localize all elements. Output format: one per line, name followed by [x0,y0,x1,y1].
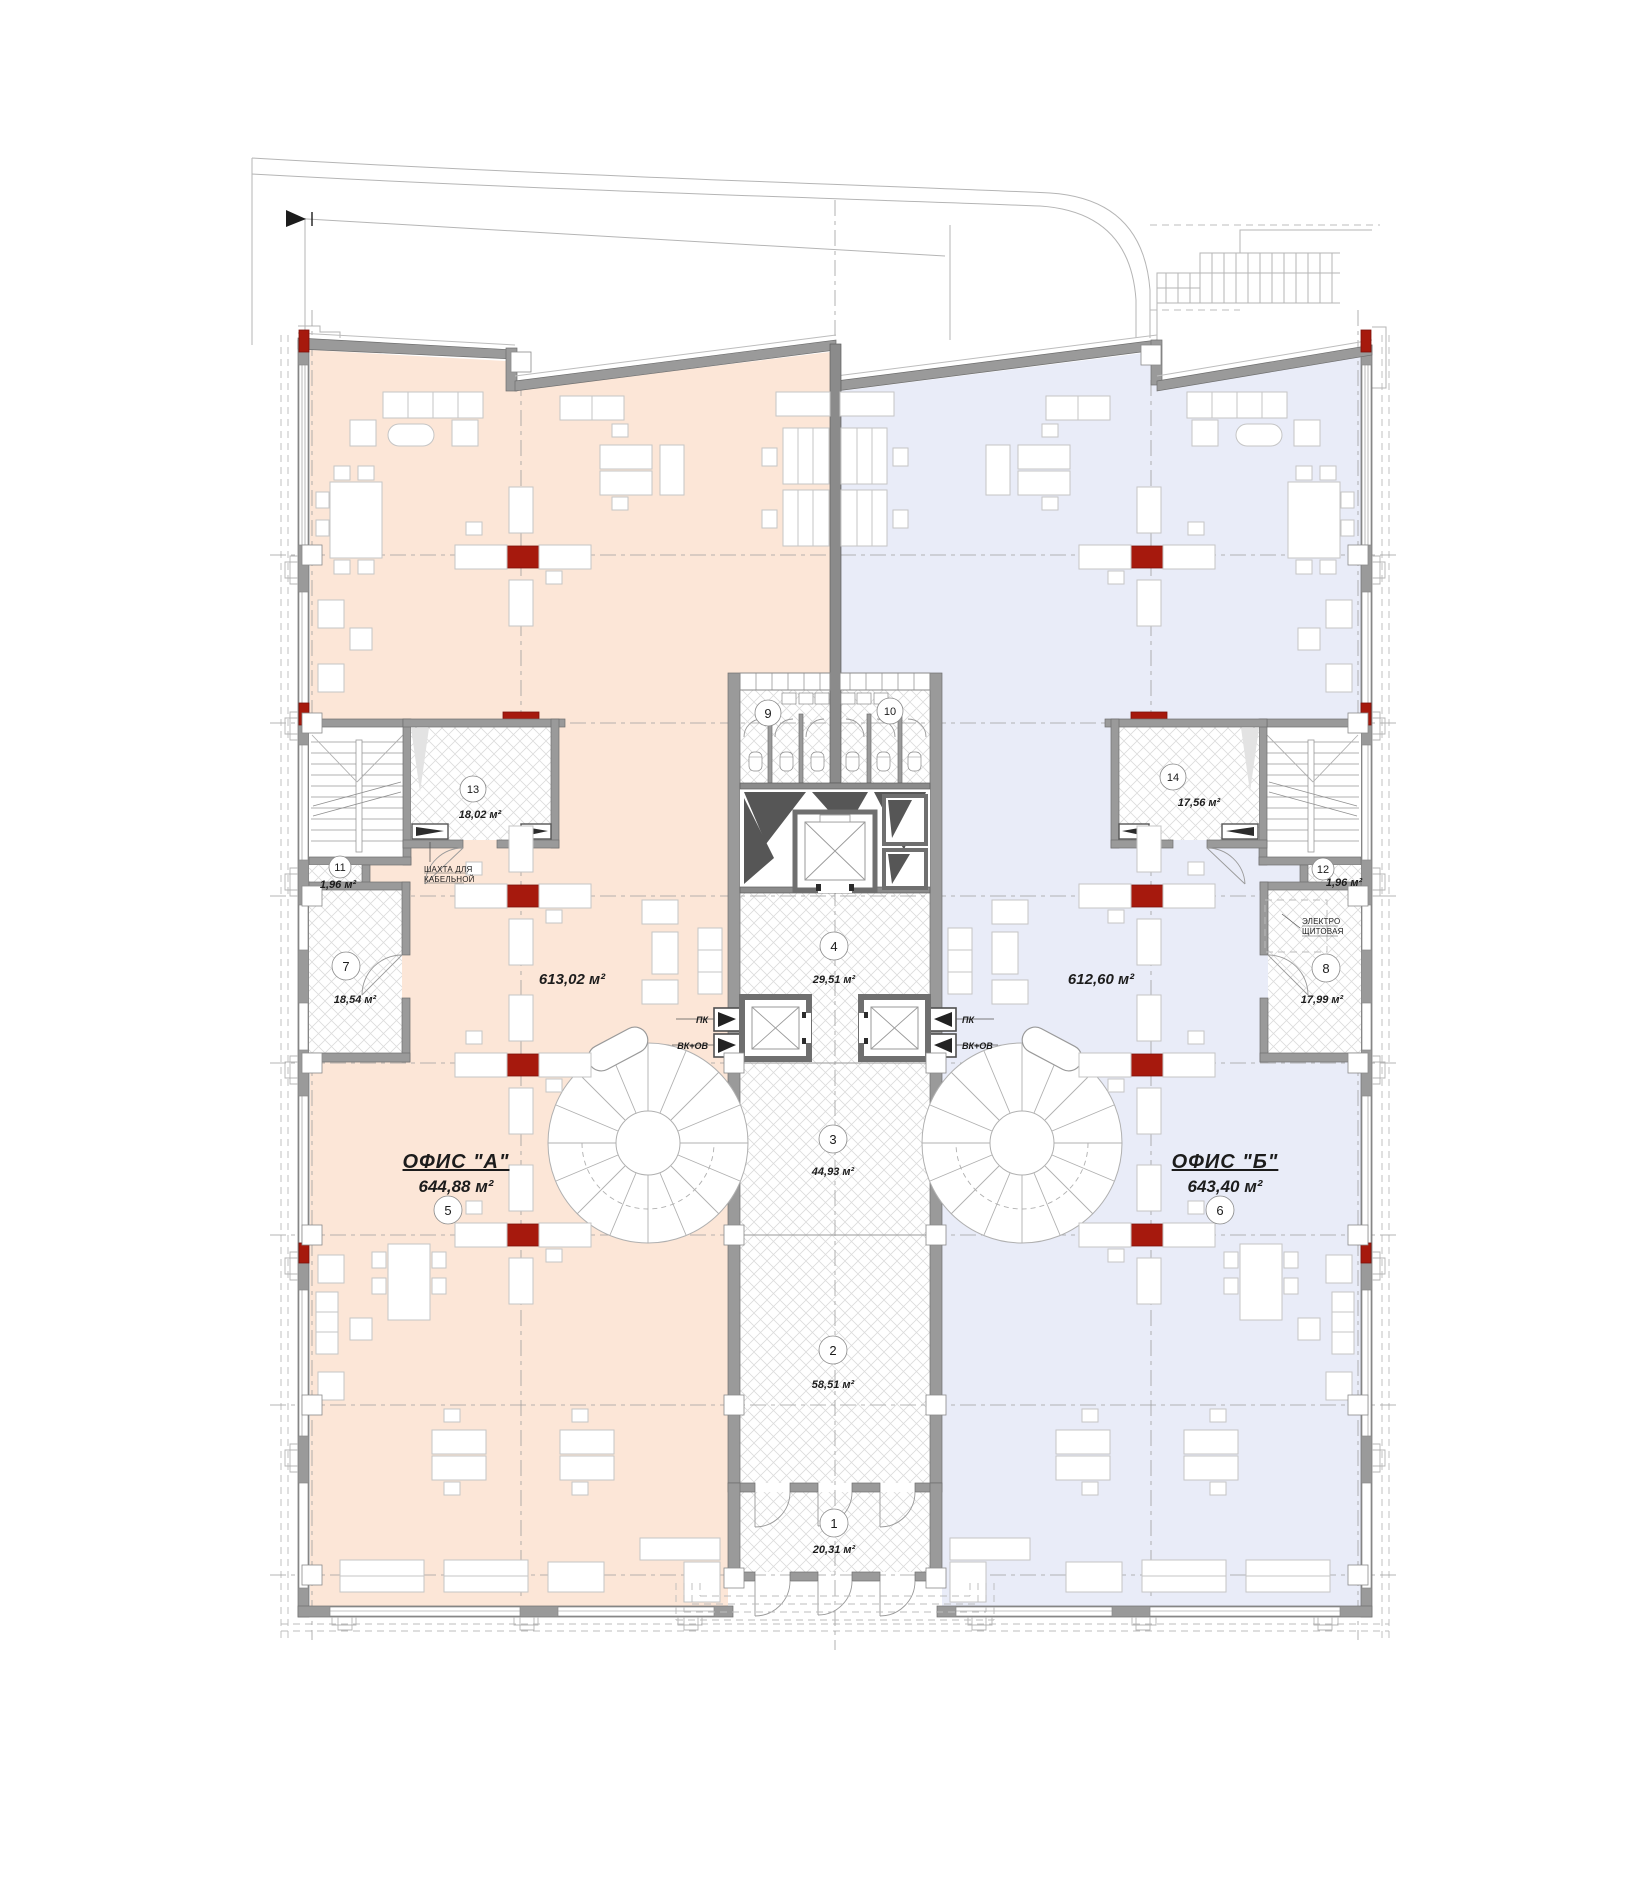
office-b-open-area: 612,60 м² [1068,971,1135,988]
room-14-number: 14 [1167,772,1179,784]
pk-label-right: ПК [962,1015,975,1025]
office-b-total-area: 643,40 м² [1188,1177,1264,1196]
office-b-title: ОФИС "Б" [1172,1151,1279,1173]
room-4-area: 29,51 м² [812,974,856,986]
office-a-total-area: 644,88 м² [419,1177,495,1196]
room-7-number: 7 [342,959,349,974]
cable-shaft-note-2: КАБЕЛЬНОЙ [424,875,475,884]
room-13-number: 13 [467,784,479,796]
electro-note-1: ЭЛЕКТРО [1302,917,1340,926]
room-4-number: 4 [830,939,837,954]
room-3-number: 3 [829,1132,836,1147]
room-9-number: 9 [764,706,771,721]
room-12-number: 12 [1317,864,1329,876]
room-11-area: 1,96 м² [320,879,357,891]
vkov-label-right: ВК+ОВ [962,1041,993,1051]
room-11-number: 11 [334,862,345,874]
exterior-stair [1150,225,1380,340]
room-13-area: 18,02 м² [459,809,502,821]
room-6-number: 6 [1216,1203,1223,1218]
room-2-number: 2 [829,1343,836,1358]
pk-label-left: ПК [696,1015,709,1025]
elevator-core [740,783,930,893]
electro-note-2: ЩИТОВАЯ [1302,927,1344,936]
vkov-label-left: ВК+ОВ [677,1041,708,1051]
office-a-open-area: 613,02 м² [539,971,606,988]
floor-plan-drawing: 1 20,31 м² 2 58,51 м² 3 44,93 м² 4 29,51… [0,0,1633,1888]
room-1-area: 20,31 м² [812,1544,856,1556]
room-14-area: 17,56 м² [1178,797,1221,809]
room-5-number: 5 [444,1203,451,1218]
office-a-title: ОФИС "А" [403,1151,510,1173]
room-2-area: 58,51 м² [812,1379,855,1391]
room-12-area: 1,96 м² [1326,877,1363,889]
room-10-number: 10 [884,706,896,718]
cable-shaft-note-1: ШАХТА ДЛЯ [424,865,472,874]
room-8-number: 8 [1322,961,1329,976]
room-7-area: 18,54 м² [334,994,377,1006]
room-1-number: 1 [830,1516,837,1531]
room-8-area: 17,99 м² [1301,994,1344,1006]
floor-plan-page: 1 20,31 м² 2 58,51 м² 3 44,93 м² 4 29,51… [0,0,1633,1888]
boundary-arrow [286,210,306,227]
room-3-area: 44,93 м² [811,1166,855,1178]
